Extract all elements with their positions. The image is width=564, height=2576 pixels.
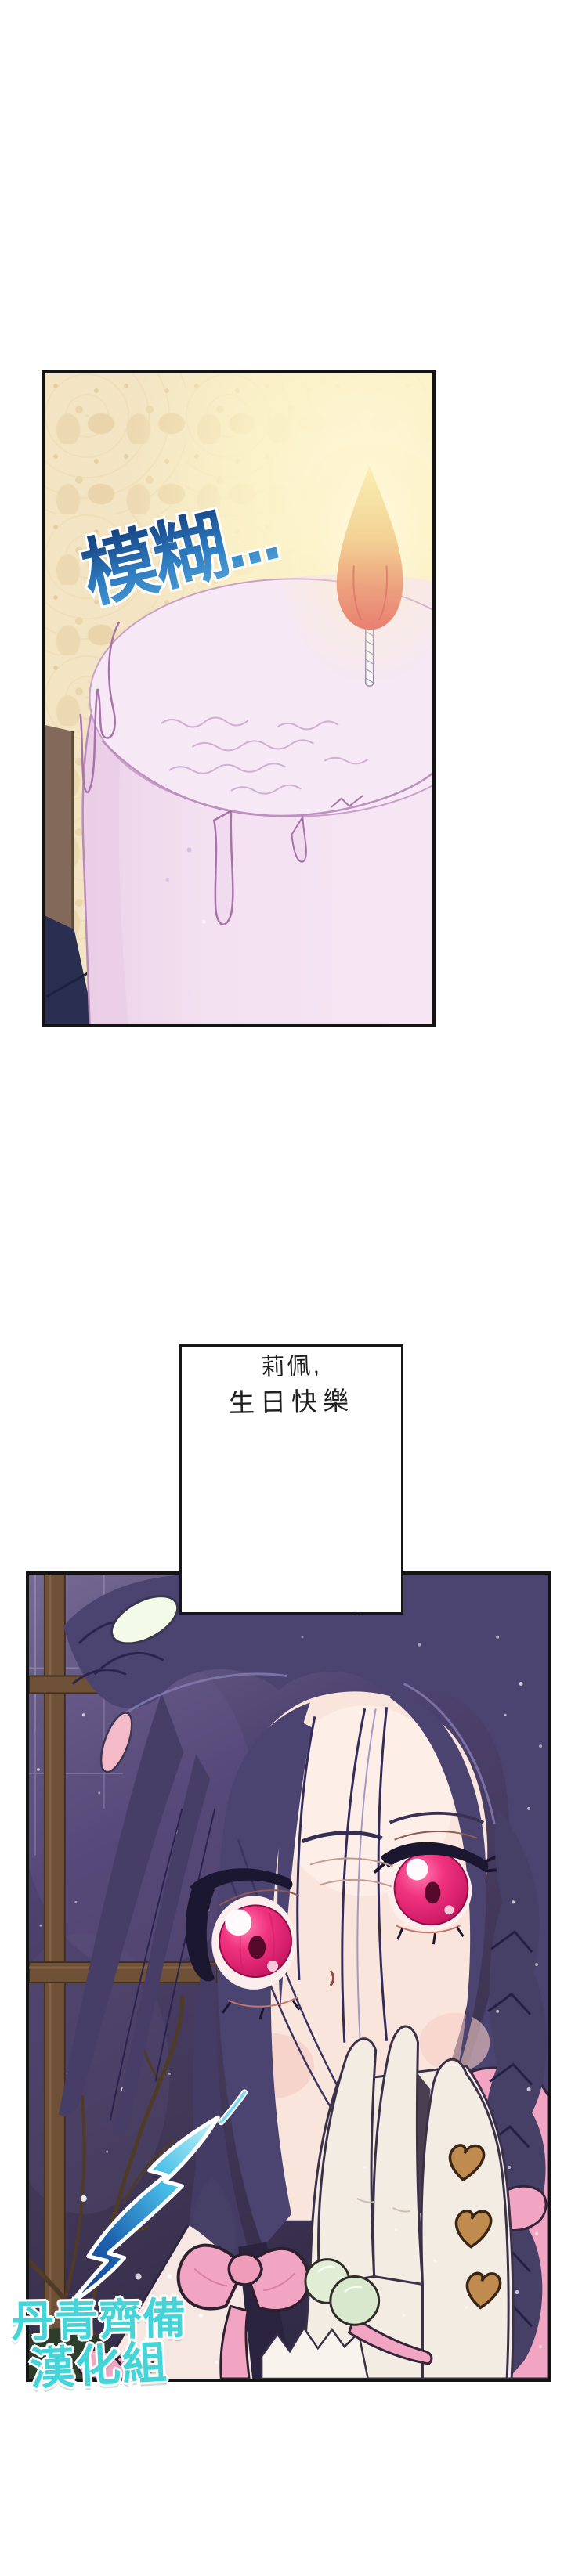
note-line-1: 莉佩, bbox=[181, 1343, 401, 1385]
girl-illustration bbox=[29, 1575, 548, 2379]
panel-girl bbox=[26, 1571, 551, 2382]
note-line-2: 生日快樂 bbox=[182, 1380, 402, 1421]
panel-candle: 模糊... bbox=[42, 370, 436, 1027]
candle-illustration: 模糊... bbox=[45, 373, 432, 1024]
comic-page: 模糊... bbox=[0, 0, 564, 2576]
wax-drip bbox=[214, 811, 233, 925]
birthday-note-card: 莉佩, 生日快樂 bbox=[179, 1344, 403, 1615]
